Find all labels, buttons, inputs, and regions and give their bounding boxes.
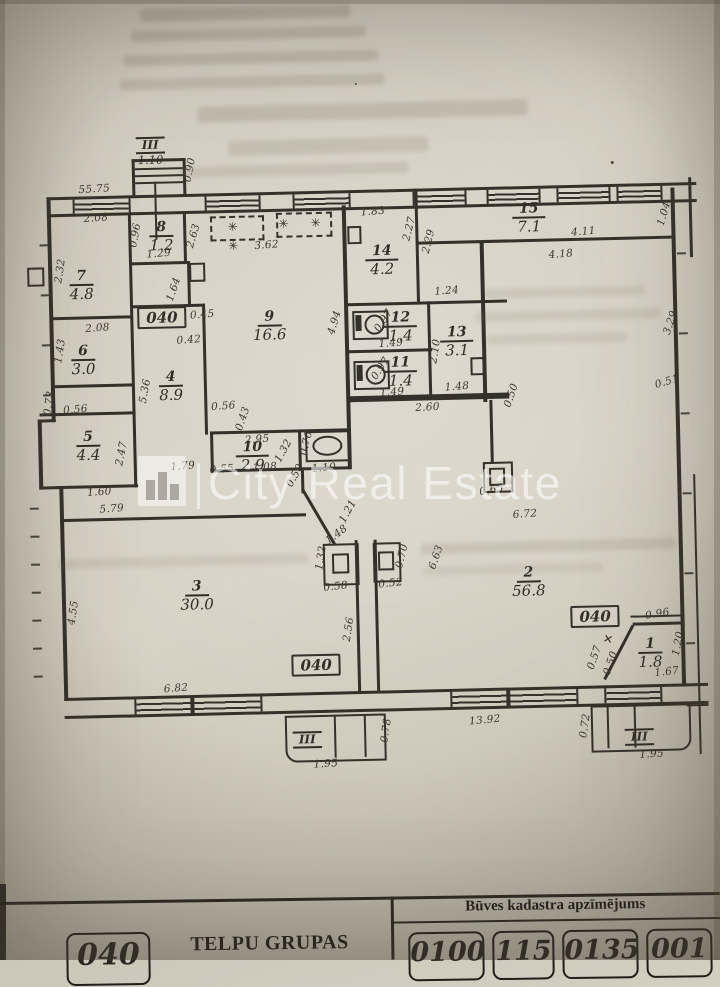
table-header-underline [391, 917, 720, 923]
table-title: TELPU GRUPAS [190, 931, 370, 957]
table-header: Būves kadastra apzīmējums [391, 895, 720, 917]
cadastre-stamp: 0135 [562, 929, 639, 979]
cadastre-stamp: 0100 [408, 931, 485, 981]
floor-plan-photo: { "colors": { "paper": "#d3cdc0", "ink":… [0, 0, 720, 960]
cadastre-stamp: 115 [492, 930, 555, 980]
title-block-table: Būves kadastra apzīmējums TELPU GRUPAS 0… [0, 0, 720, 965]
group-code-stamp: 040 [66, 932, 151, 986]
cadastre-stamp: 001 [646, 928, 713, 978]
cadastre-stamps: 01001150135001 [0, 0, 707, 5]
